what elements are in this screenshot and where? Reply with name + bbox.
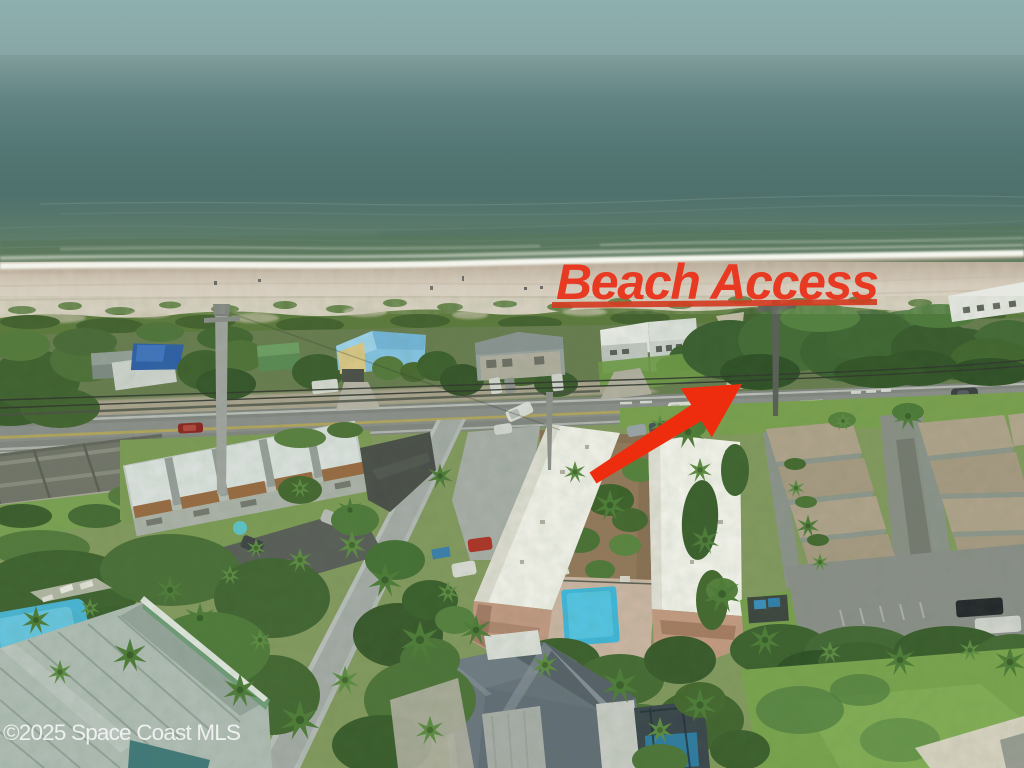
svg-text:©2025 Space Coast MLS: ©2025 Space Coast MLS [3, 720, 241, 745]
svg-text:Beach Access: Beach Access [556, 254, 879, 310]
